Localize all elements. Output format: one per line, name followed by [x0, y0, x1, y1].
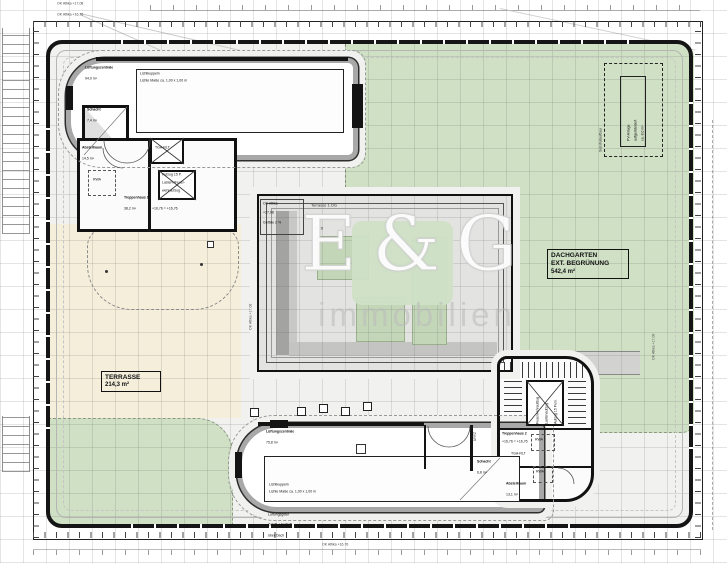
drain-square-1 [250, 408, 259, 417]
outer-top-ruler [150, 5, 700, 11]
tower-rwa-label-2: RWA [536, 470, 544, 474]
north-skylight-field: Lichtkuppeln Lichte Maße ca. 1,00 x 1,00… [136, 69, 344, 133]
drain-square-2 [297, 407, 306, 416]
tower-elevator-line2: Lastenaufzug [545, 403, 549, 424]
north-skylight-label-1: Lichtkuppeln [140, 72, 160, 76]
south-hall-area: 75,8 m² [266, 441, 294, 445]
south-shaft-name: Schacht [477, 460, 491, 464]
north-stair-name: Treppenhaus 1 [124, 196, 149, 200]
tower-tga-label: TGA-RLT [511, 452, 526, 456]
dachgarten-line2: EXT. BEGRÜNUNG [551, 260, 625, 268]
courtyard-dim-right: OK Attika +17,08 [652, 334, 656, 360]
north-hall-label: Lüftungszentrale 94,0 m² [85, 66, 141, 86]
dachgarten-line3: 542,4 m² [551, 269, 625, 277]
tower-level-marker: +16,76 = +16,76 [502, 440, 528, 444]
south-hall-top-cap [270, 420, 288, 428]
south-vent-line1: Lüftungsgitter [268, 513, 292, 517]
south-hall-label: Lüftungszentrale 75,8 m² [266, 430, 322, 450]
south-skylight-label-2: Lichte Maße ca. 1,00 x 1,00 m [269, 490, 316, 494]
south-vent-note: Lüftungsgitter Zuluft- / Fortluft über D… [268, 513, 315, 542]
north-elevator-line1: Aufzug 15 P. [162, 173, 182, 177]
north-shaft-label: Schacht 7,4 m² [87, 108, 114, 128]
north-hall-area: 94,0 m² [85, 77, 113, 81]
courtyard-level-label: +4,76 [313, 226, 323, 231]
tower-rwa-label-1: RWA [535, 438, 543, 442]
watermark-logo-square [352, 221, 453, 305]
dim-text-bottom: OK Attika +16,76 [322, 543, 348, 547]
dachgarten-label-box: DACHGARTEN EXT. BEGRÜNUNG 542,4 m² [547, 249, 629, 279]
south-shaft-area: 6,8 m² [477, 471, 491, 475]
north-stair-label: Treppenhaus 1 38,2 m² [124, 196, 173, 216]
south-door-wall-left [424, 425, 426, 469]
attika-ticks-right [689, 100, 693, 470]
south-hall-name: Lüftungszentrale [266, 430, 294, 434]
north-rwa-box: RWA [88, 170, 116, 196]
tower-elevator: Aufzug 15 Pers. Lastenaufzug Feuerwehrau… [526, 380, 564, 426]
frame-ticks-left [33, 21, 39, 538]
north-stair-area: 38,2 m² [124, 207, 149, 211]
dim-text-top-1: OK Attika +17,08 [57, 2, 83, 6]
courtyard-marker-line1: OK Attika [263, 202, 278, 206]
courtyard-dim-left: OK Attika +17,08 [249, 304, 253, 330]
courtyard-terrace-label: Terrasse 1.OG [311, 203, 337, 208]
dim-text-top-2: OK Attika +16,76 [57, 13, 83, 17]
north-level-marker: +16,76 = +16,76 [152, 207, 178, 211]
north-skylight-label-2: Lichte Maße ca. 1,00 x 1,00 m [140, 79, 187, 83]
drain-square-5 [363, 402, 372, 411]
south-door-note: Zuluft [472, 432, 476, 441]
courtyard-marker-box: OK Attika +17,08 Gefälle 2 % [260, 199, 304, 235]
courtyard-marker-line3: Gefälle 2 % [263, 221, 281, 225]
north-shaft-name: Schacht [87, 108, 101, 112]
south-vent-line2: Zuluft- / Fortluft [268, 523, 292, 527]
outer-right-dashed-line [712, 120, 713, 530]
north-shaft-area: 7,4 m² [87, 119, 101, 123]
tower-rwa-box-2: RWA [533, 466, 553, 483]
frame-ticks-right [695, 21, 701, 538]
north-storage-name: Abstellraum [82, 146, 102, 150]
terrace-dot-1 [105, 270, 108, 273]
north-storage-label: Abstellraum 14,5 m² [82, 146, 122, 166]
north-hall-name: Lüftungszentrale [85, 66, 113, 70]
frame-ticks-top [33, 21, 701, 27]
north-hall-east-cap [352, 84, 363, 128]
attika-ticks-bottom [110, 524, 580, 528]
tower-storage-name: Abstellraum [506, 482, 526, 486]
north-hall-west-cap [66, 86, 73, 110]
north-hall-top-wall [96, 57, 348, 61]
south-skylight-label-1: Lichtkuppeln [269, 483, 289, 487]
floor-plan-sheet: OK Attika +17,08 OK Attika +16,76 OK Att… [0, 0, 727, 563]
courtyard-marker-line2: +17,08 [263, 211, 274, 215]
left-ladder-hatch [2, 28, 30, 234]
drain-square-3 [319, 404, 328, 413]
north-elevator-line3: wehraufzug [162, 189, 180, 193]
outer-bottom-ruler [33, 549, 701, 555]
south-vent-line3: über Dach [268, 534, 292, 538]
tower-rwa-box-1: RWA [531, 434, 555, 451]
north-rwa-label: RWA [93, 178, 101, 182]
terrasse-line2: 214,3 m² [105, 382, 157, 390]
terrace-drain-square [207, 241, 214, 248]
north-storage-area: 14,5 m² [82, 157, 102, 161]
frame-ticks-bottom [33, 532, 701, 538]
tower-storage-label: Abstellraum 13,1 m² [506, 482, 546, 502]
north-tga-label: TGA-RLT [155, 146, 170, 150]
south-hall-west-cap [235, 452, 242, 478]
tower-storage-area: 13,1 m² [506, 493, 526, 497]
terrace-dot-2 [200, 263, 203, 266]
north-elevator-line2: Lasten-/Feuer- [162, 181, 185, 185]
drain-square-4 [341, 407, 350, 416]
terrasse-label-box: TERRASSE 214,3 m² [101, 371, 161, 392]
left-ladder-hatch-lower [2, 416, 30, 472]
south-shaft-label: Schacht 6,8 m² [477, 460, 504, 480]
tower-elevator-line3: Feuerwehraufzug [536, 397, 540, 424]
tower-elevator-line1: Aufzug 15 Pers. [554, 399, 558, 424]
attika-ticks-top [100, 40, 640, 44]
attika-ticks-left [46, 110, 50, 450]
tower-stair-label: Treppenhaus 2 [502, 432, 527, 436]
pv-side-note: Substrataufbau [599, 128, 603, 152]
south-roof-drain-square [356, 444, 366, 454]
